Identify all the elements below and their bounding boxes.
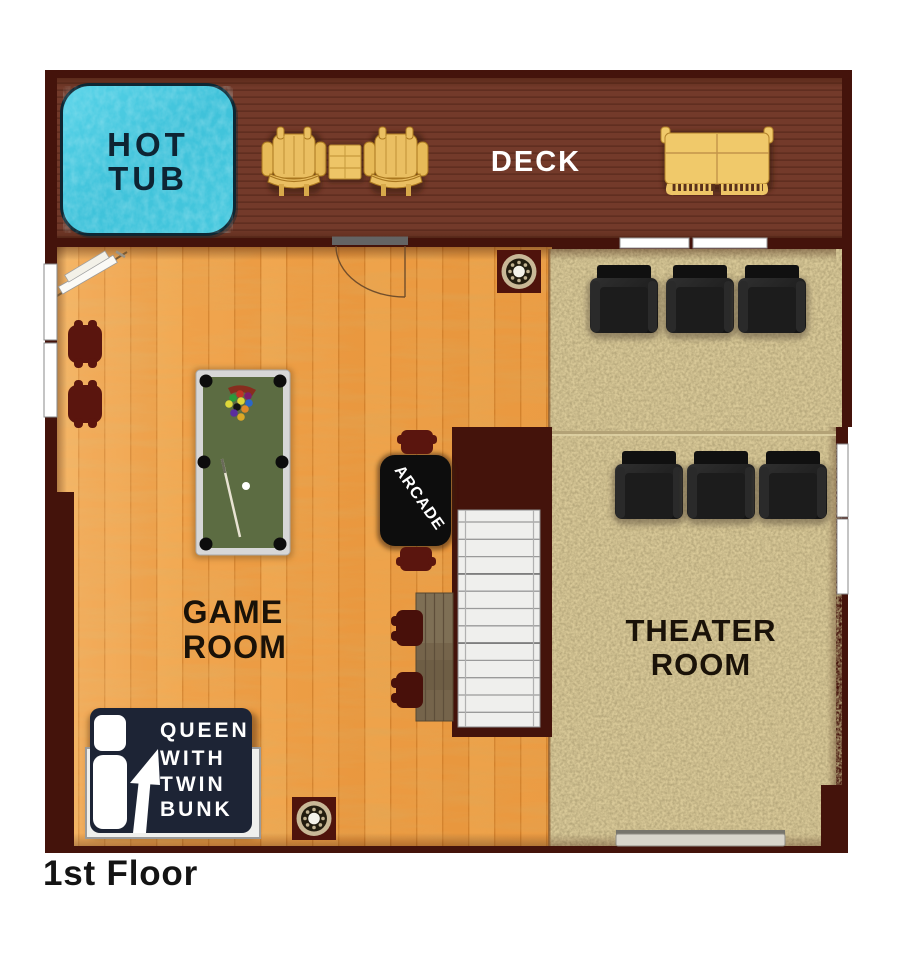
svg-text:WITH: WITH — [160, 747, 226, 770]
svg-text:TUB: TUB — [108, 160, 188, 197]
svg-text:ROOM: ROOM — [651, 647, 751, 682]
svg-text:1st Floor: 1st Floor — [43, 854, 198, 893]
svg-text:HOT: HOT — [107, 126, 189, 163]
svg-text:DECK: DECK — [491, 146, 581, 178]
svg-text:QUEEN: QUEEN — [160, 719, 250, 742]
svg-text:ROOM: ROOM — [183, 629, 287, 665]
svg-text:TWIN: TWIN — [160, 773, 226, 796]
svg-text:THEATER: THEATER — [625, 613, 776, 648]
svg-text:GAME: GAME — [183, 594, 284, 630]
svg-text:BUNK: BUNK — [160, 798, 233, 821]
